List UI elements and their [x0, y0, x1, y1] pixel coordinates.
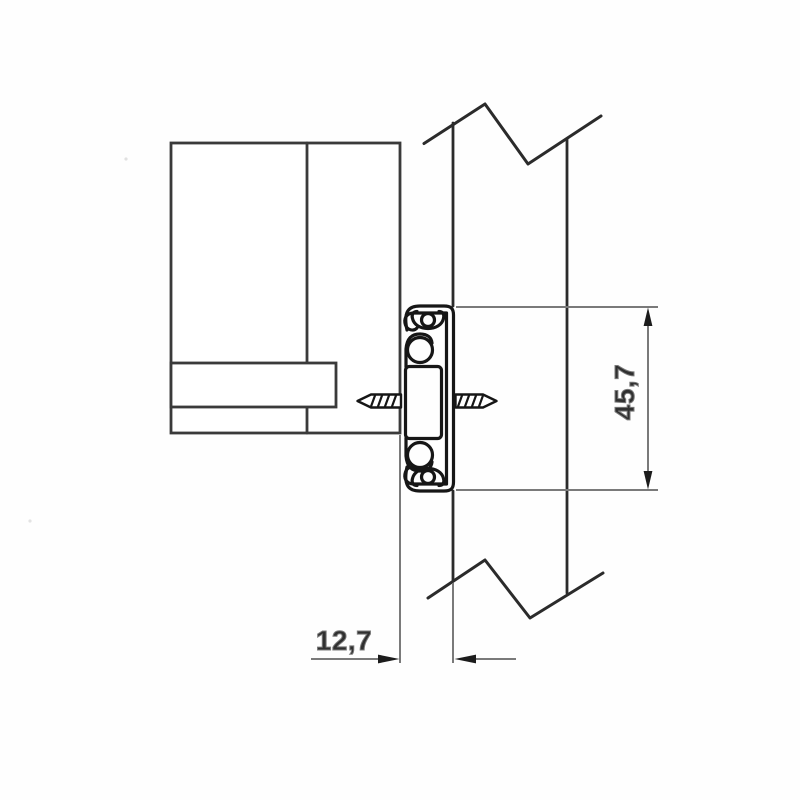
technical-drawing-page: 45,7 12,7: [0, 0, 800, 800]
drawer-assembly: [171, 143, 400, 433]
scan-speck: [28, 519, 31, 522]
ball-bearing-top-small: [422, 314, 435, 327]
dimension-label-height: 45,7: [609, 364, 640, 421]
arrowhead-left: [455, 655, 477, 664]
arrowhead-down: [644, 471, 653, 490]
break-line-top: [424, 104, 601, 164]
arrowhead-right: [378, 655, 400, 664]
ball-bearing-upper-large: [408, 338, 433, 363]
arrowhead-up: [644, 308, 653, 327]
ball-bearing-bottom-small: [422, 471, 435, 484]
mounting-screw-right: [456, 395, 497, 408]
inner-rail-box: [406, 367, 442, 439]
scan-speck: [124, 157, 127, 160]
cabinet-panel: [424, 104, 603, 618]
technical-drawing-canvas: 45,7 12,7: [0, 0, 800, 800]
drawer-bottom-bar: [171, 363, 336, 407]
ball-bearing-lower-large: [408, 443, 433, 468]
slide-profile: [405, 306, 454, 491]
dimension-label-thickness: 12,7: [316, 625, 373, 656]
